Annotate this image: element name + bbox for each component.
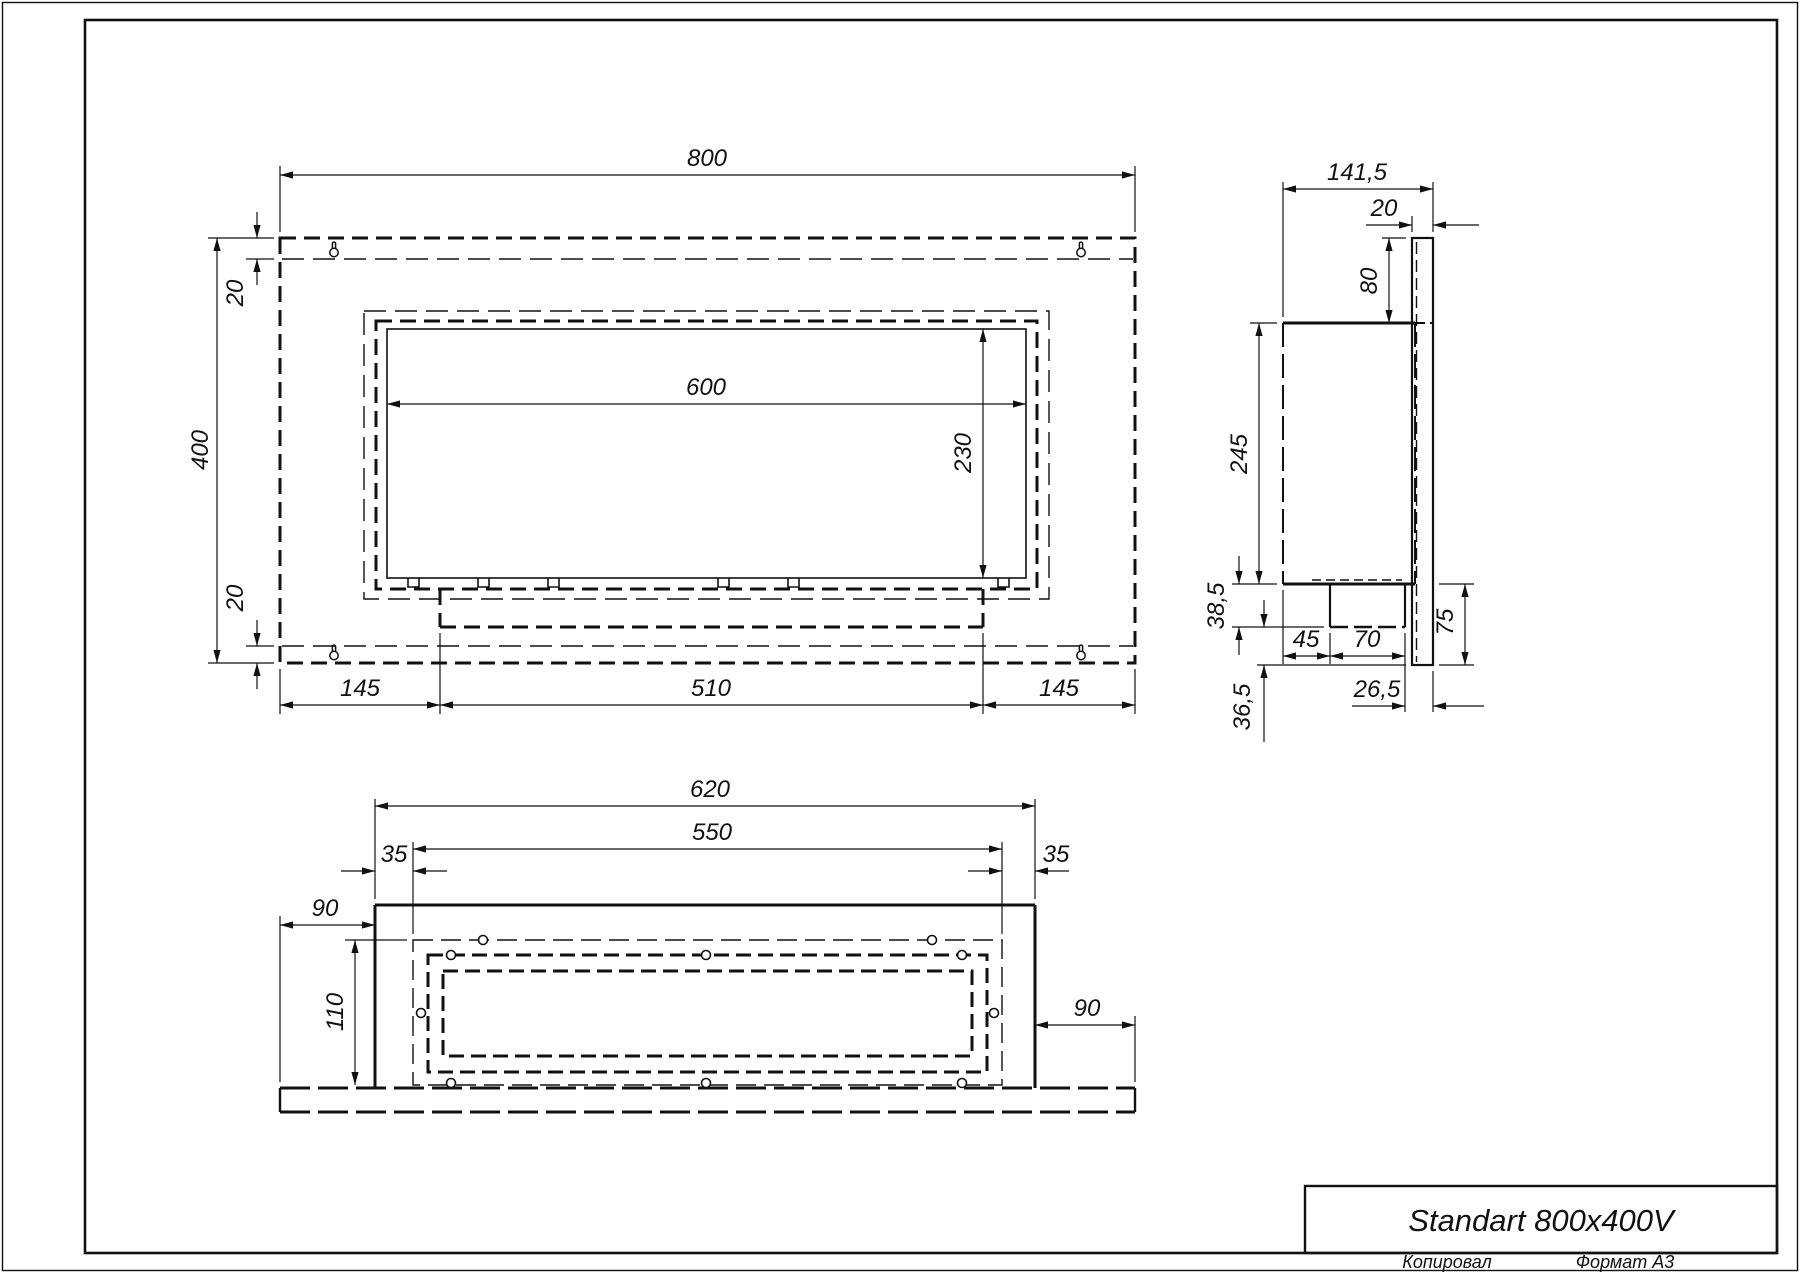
dim-bottom-opening-depth: 110 — [322, 992, 349, 1031]
inner-frame — [85, 20, 1777, 1253]
dim-side-body-height: 245 — [1226, 433, 1253, 475]
bottom-screw-holes — [417, 936, 999, 1088]
footer-format-label: Формат А3 — [1576, 1252, 1675, 1272]
dim-side-bottom-gap: 36,5 — [1229, 683, 1256, 730]
front-inner-frame-hidden — [376, 321, 1037, 589]
dim-side-burner-depth: 70 — [1354, 626, 1381, 653]
engineering-drawing: 800 400 20 20 600 230 — [0, 0, 1800, 1273]
drawing-sheet: 800 400 20 20 600 230 — [0, 0, 1800, 1273]
front-dimensions: 800 400 20 20 600 230 — [187, 145, 1135, 714]
bottom-dimensions: 620 550 35 35 90 90 110 — [280, 776, 1135, 1085]
title-block-name: Standart 800x400V — [1408, 1203, 1677, 1238]
bottom-opening-hidden-inner — [443, 971, 972, 1056]
bottom-opening-hidden-outer — [413, 940, 1002, 1085]
keyhole-bottom-left-icon — [330, 645, 338, 660]
dim-front-bottom-offset: 20 — [222, 584, 249, 612]
keyhole-top-left-icon — [330, 242, 338, 257]
bottom-view: 620 550 35 35 90 90 110 — [280, 776, 1135, 1112]
front-glass-opening — [387, 329, 1026, 578]
dim-front-width: 800 — [687, 145, 728, 172]
dim-front-height: 400 — [187, 429, 214, 470]
dim-side-burner-drop: 38,5 — [1203, 582, 1230, 629]
side-dimensions: 141,5 20 80 245 38,5 36,5 — [1203, 159, 1484, 742]
dim-bottom-opening-width: 550 — [692, 819, 733, 846]
dim-side-depth: 141,5 — [1327, 159, 1388, 186]
dim-front-tray-width: 510 — [691, 675, 732, 702]
dim-bottom-margin-left: 90 — [312, 895, 339, 922]
dim-front-glass-height: 230 — [950, 432, 977, 474]
front-bottom-tabs — [408, 578, 1009, 587]
side-burner-box — [1312, 580, 1405, 627]
keyhole-top-right-icon — [1077, 242, 1085, 257]
dim-side-plate-top-rise: 80 — [1356, 267, 1383, 294]
dim-side-back-offset: 26,5 — [1353, 676, 1401, 703]
dim-front-glass-width: 600 — [686, 374, 727, 401]
dim-bottom-inset-right: 35 — [1043, 841, 1070, 868]
dim-bottom-margin-right: 90 — [1074, 995, 1101, 1022]
dim-front-top-offset: 20 — [222, 279, 249, 307]
page-borders — [3, 3, 1798, 1271]
dim-front-right-margin: 145 — [1039, 675, 1080, 702]
dim-side-plate-bottom-drop: 75 — [1432, 608, 1459, 635]
outer-border — [3, 3, 1798, 1271]
keyhole-bottom-right-icon — [1077, 645, 1085, 660]
bottom-wall-plate — [280, 1088, 1135, 1112]
dim-bottom-body-width: 620 — [690, 776, 731, 803]
dim-bottom-inset-left: 35 — [381, 841, 408, 868]
dim-side-front-offset: 45 — [1293, 626, 1320, 653]
side-view: 141,5 20 80 245 38,5 36,5 — [1203, 159, 1484, 742]
front-burner-tray-hidden — [440, 589, 983, 627]
front-outer-frame-hidden — [364, 311, 1049, 599]
front-view: 800 400 20 20 600 230 — [187, 145, 1135, 714]
bottom-opening-hidden-mid — [428, 955, 987, 1072]
footer-copied-label: Копировал — [1402, 1252, 1492, 1272]
title-block: Standart 800x400V Копировал Формат А3 — [1305, 1186, 1777, 1272]
dim-side-plate-thickness: 20 — [1370, 195, 1398, 222]
dim-front-left-margin: 145 — [340, 675, 381, 702]
